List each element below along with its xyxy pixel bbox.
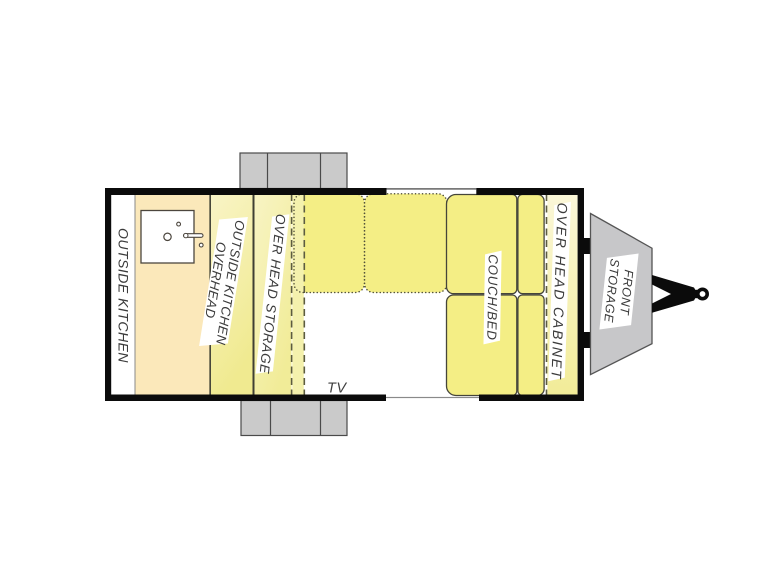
svg-text:COUCH/BED: COUCH/BED [484,254,501,341]
svg-text:TV: TV [327,381,347,397]
svg-text:OUTSIDE KITCHEN: OUTSIDE KITCHEN [116,228,132,363]
